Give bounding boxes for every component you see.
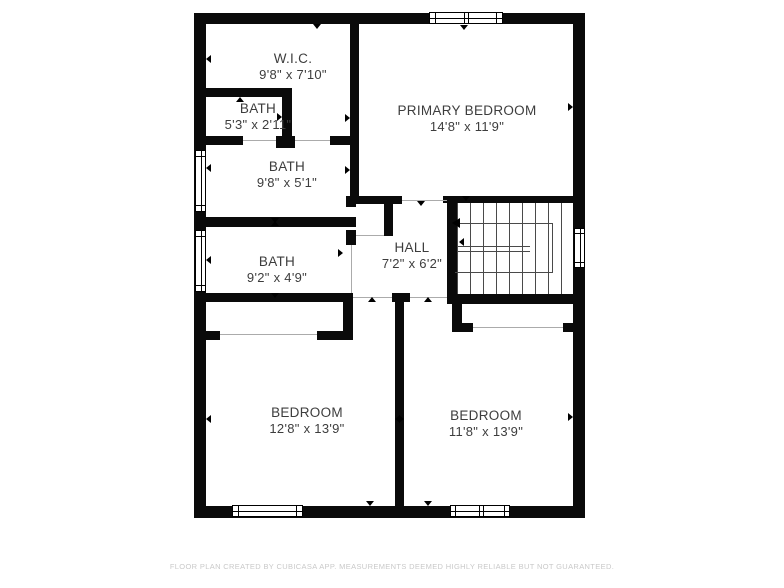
- wall-bath-small-bottom: [206, 136, 243, 145]
- tick-icon: [462, 196, 470, 201]
- window-left-bath-upper: [195, 150, 206, 212]
- staircase-path-bottom: [455, 272, 553, 273]
- wall-closet-right-stub-a: [452, 323, 473, 332]
- window-cap: [196, 236, 205, 237]
- staircase-direction-arrow-icon: [452, 218, 460, 228]
- window-glazing-line: [201, 151, 202, 211]
- wall-wic-primary-divider: [350, 24, 359, 196]
- tick-icon: [366, 501, 374, 506]
- tick-icon: [271, 293, 279, 298]
- wall-closet-left-stub-b: [317, 331, 353, 340]
- room-dimensions: 9'2" x 4'9": [247, 270, 307, 286]
- room-dimensions: 5'3" x 2'11": [225, 117, 292, 133]
- window-cap: [238, 506, 239, 516]
- window-glazing-line: [233, 511, 302, 512]
- staircase-path-top: [459, 223, 553, 224]
- wall-bath-upper-bottom: [206, 217, 356, 227]
- wall-outer-top: [194, 13, 585, 24]
- room-dimensions: 12'8" x 13'9": [269, 421, 344, 437]
- tick-icon: [368, 297, 376, 302]
- window-cap: [575, 233, 584, 234]
- room-name: BEDROOM: [449, 408, 523, 424]
- staircase-rail-lower: [457, 251, 530, 252]
- tick-icon: [417, 201, 425, 206]
- window-cap: [496, 13, 497, 23]
- window-cap: [455, 506, 456, 516]
- wall-wic-south-segment: [330, 136, 359, 145]
- room-name: BATH: [257, 159, 317, 175]
- room-dimensions: 14'8" x 11'9": [397, 119, 536, 135]
- window-cap: [575, 262, 584, 263]
- tick-icon: [568, 103, 573, 111]
- window-glazing-line: [201, 231, 202, 291]
- room-label-bath-lower: BATH 9'2" x 4'9": [247, 254, 307, 286]
- window-right-stairs: [574, 228, 585, 268]
- room-label-bedroom-right: BEDROOM 11'8" x 13'9": [449, 408, 523, 440]
- staircase-path-turn: [552, 223, 553, 272]
- wall-bedroom-divider: [395, 293, 404, 506]
- opening-bath-small-door: [243, 140, 276, 141]
- tick-icon: [459, 238, 464, 246]
- wall-wic-bottom: [206, 88, 292, 97]
- window-cap: [196, 205, 205, 206]
- window-top-primary: [429, 12, 503, 24]
- tick-icon: [568, 413, 573, 421]
- window-cap: [504, 506, 505, 516]
- room-label-wic: W.I.C. 9'8" x 7'10": [259, 51, 327, 83]
- staircase-treads: [457, 203, 574, 294]
- wall-closet-left-stub-a: [206, 331, 220, 340]
- room-name: BEDROOM: [269, 405, 344, 421]
- window-divider: [468, 13, 469, 23]
- window-cap: [435, 13, 436, 23]
- window-divider: [464, 13, 465, 23]
- window-glazing-line: [430, 18, 502, 19]
- tick-icon: [399, 415, 404, 423]
- tick-icon: [345, 114, 350, 122]
- room-name: BATH: [247, 254, 307, 270]
- window-cap: [296, 506, 297, 516]
- tick-icon: [206, 164, 211, 172]
- room-label-primary-bedroom: PRIMARY BEDROOM 14'8" x 11'9": [397, 103, 536, 135]
- wall-hall-nook-left-stub: [346, 230, 356, 245]
- opening-closet-right-doors: [473, 327, 563, 328]
- tick-icon: [424, 501, 432, 506]
- opening-hall-nook: [356, 235, 384, 236]
- opening-wic-passage: [295, 140, 330, 141]
- tick-icon: [271, 221, 279, 226]
- window-divider: [483, 506, 484, 516]
- tick-icon: [313, 24, 321, 29]
- room-name: W.I.C.: [259, 51, 327, 67]
- window-bottom-bedroom-left: [232, 505, 303, 517]
- window-cap: [196, 285, 205, 286]
- tick-icon: [338, 249, 343, 257]
- tick-icon: [206, 415, 211, 423]
- tick-icon: [460, 25, 468, 30]
- opening-closet-left-doors: [220, 334, 317, 335]
- room-name: HALL: [382, 240, 442, 256]
- room-label-bath-upper: BATH 9'8" x 5'1": [257, 159, 317, 191]
- staircase-rail-upper: [457, 246, 530, 247]
- room-dimensions: 9'8" x 5'1": [257, 175, 317, 191]
- room-name: BATH: [225, 101, 292, 117]
- wall-closet-right-stub-b: [563, 323, 585, 332]
- window-bottom-bedroom-right: [450, 505, 510, 517]
- tick-icon: [206, 256, 211, 264]
- room-label-hall: HALL 7'2" x 6'2": [382, 240, 442, 272]
- wall-hall-nook-right: [384, 204, 393, 236]
- room-name: PRIMARY BEDROOM: [397, 103, 536, 119]
- wall-hall-nook-top: [355, 196, 402, 204]
- window-cap: [196, 156, 205, 157]
- wall-bath-small-foot: [276, 136, 295, 148]
- tick-icon: [206, 55, 211, 63]
- room-dimensions: 9'8" x 7'10": [259, 67, 327, 83]
- footer-disclaimer: FLOOR PLAN CREATED BY CUBICASA APP. MEAS…: [0, 562, 784, 571]
- tick-icon: [424, 297, 432, 302]
- room-dimensions: 11'8" x 13'9": [449, 424, 523, 440]
- room-dimensions: 7'2" x 6'2": [382, 256, 442, 272]
- wall-stairs-bottom: [447, 294, 578, 304]
- window-divider: [479, 506, 480, 516]
- tick-icon: [345, 166, 350, 174]
- opening-bath-lower-door: [351, 245, 352, 293]
- window-left-bath-lower: [195, 230, 206, 292]
- room-label-bedroom-left: BEDROOM 12'8" x 13'9": [269, 405, 344, 437]
- floor-plan-canvas: W.I.C. 9'8" x 7'10" BATH 5'3" x 2'11" BA…: [0, 0, 784, 588]
- room-label-bath-small: BATH 5'3" x 2'11": [225, 101, 292, 133]
- window-glazing-line: [451, 511, 509, 512]
